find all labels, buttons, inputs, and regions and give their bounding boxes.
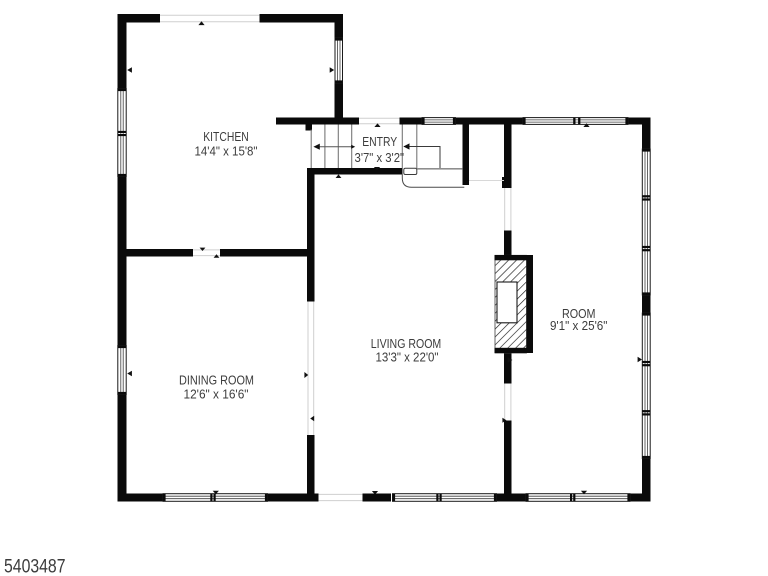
svg-text:12'6" x 16'6": 12'6" x 16'6" xyxy=(184,386,249,401)
svg-text:3'7" x 3'2": 3'7" x 3'2" xyxy=(355,150,405,165)
svg-text:14'4" x 15'8": 14'4" x 15'8" xyxy=(195,144,258,159)
svg-text:9'1" x 25'6": 9'1" x 25'6" xyxy=(550,318,608,333)
svg-text:ENTRY: ENTRY xyxy=(362,134,397,149)
svg-text:5403487: 5403487 xyxy=(4,556,66,576)
svg-text:KITCHEN: KITCHEN xyxy=(203,129,249,144)
svg-text:13'3" x 22'0": 13'3" x 22'0" xyxy=(376,350,439,365)
